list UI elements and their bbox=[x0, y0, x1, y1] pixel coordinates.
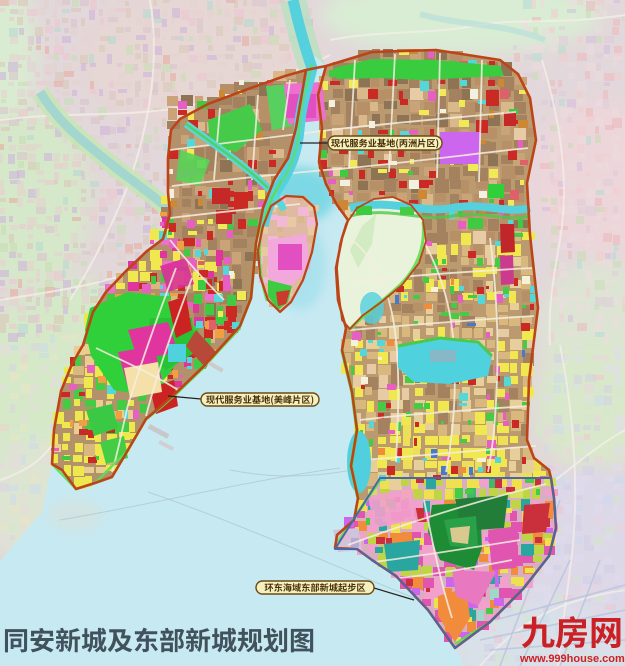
svg-text:www.999house.com: www.999house.com bbox=[519, 653, 625, 665]
